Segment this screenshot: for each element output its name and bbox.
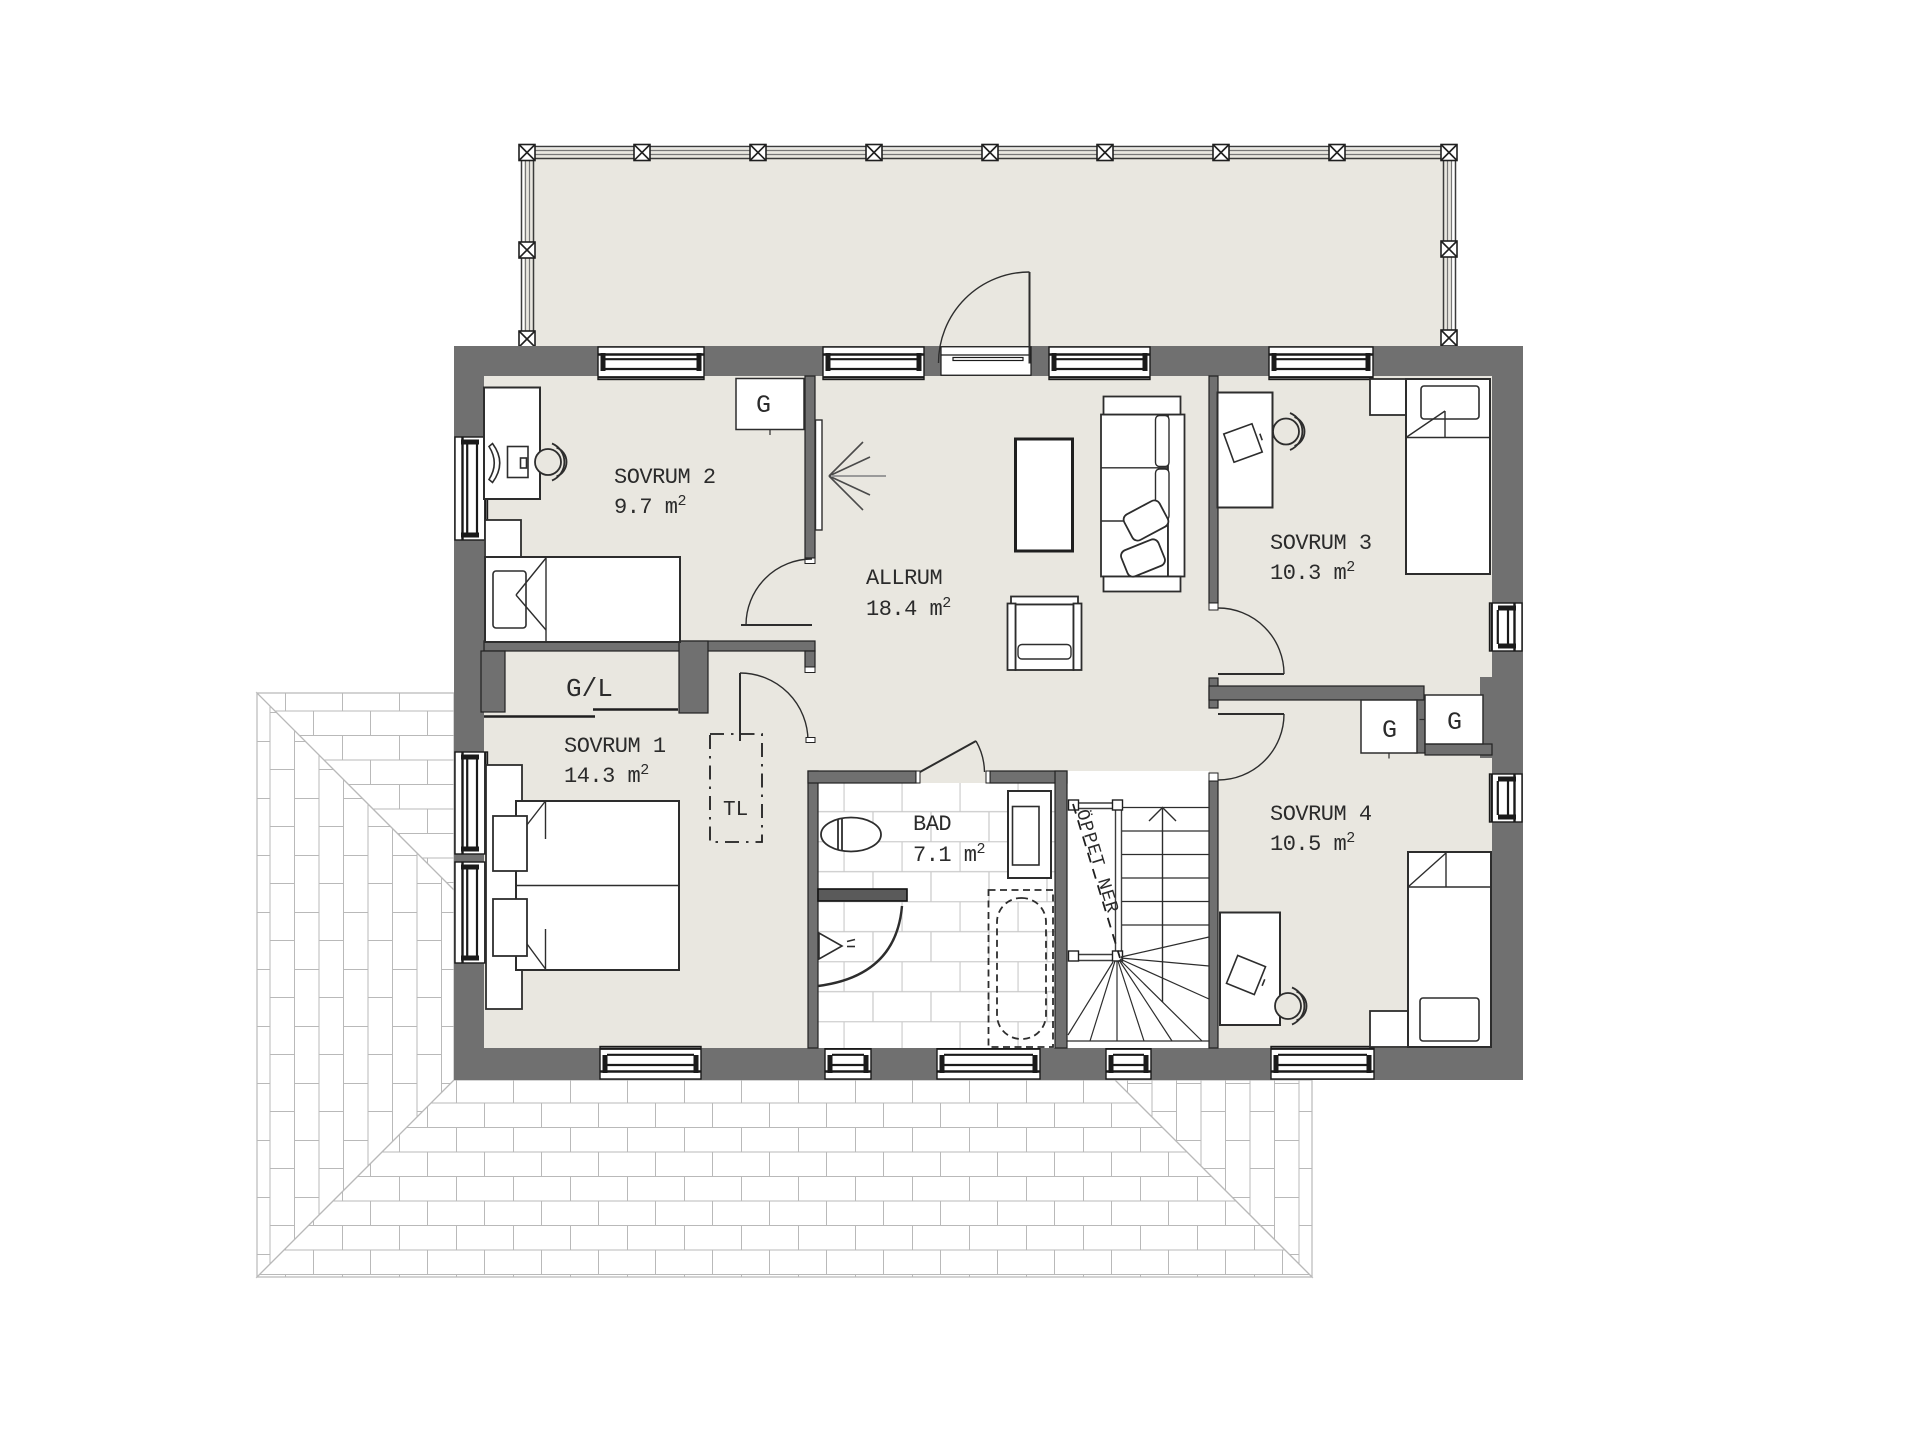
svg-text:G: G — [1382, 716, 1397, 745]
svg-text:G: G — [756, 391, 771, 420]
svg-text:14.3 m2: 14.3 m2 — [564, 762, 649, 789]
svg-text:TL: TL — [723, 799, 748, 822]
svg-text:10.5 m2: 10.5 m2 — [1270, 830, 1355, 857]
svg-text:9.7 m2: 9.7 m2 — [614, 493, 686, 520]
svg-text:10.3 m2: 10.3 m2 — [1270, 559, 1355, 586]
svg-text:18.4 m2: 18.4 m2 — [866, 595, 951, 622]
svg-text:SOVRUM 1: SOVRUM 1 — [564, 734, 666, 759]
svg-text:SOVRUM 4: SOVRUM 4 — [1270, 802, 1372, 827]
svg-text:SOVRUM 3: SOVRUM 3 — [1270, 531, 1372, 556]
svg-text:ALLRUM: ALLRUM — [866, 566, 942, 591]
svg-text:BAD: BAD — [913, 812, 951, 837]
svg-text:G/L: G/L — [566, 674, 613, 704]
svg-text:7.1 m2: 7.1 m2 — [913, 841, 985, 868]
svg-text:G: G — [1447, 708, 1462, 737]
svg-text:SOVRUM 2: SOVRUM 2 — [614, 465, 716, 490]
